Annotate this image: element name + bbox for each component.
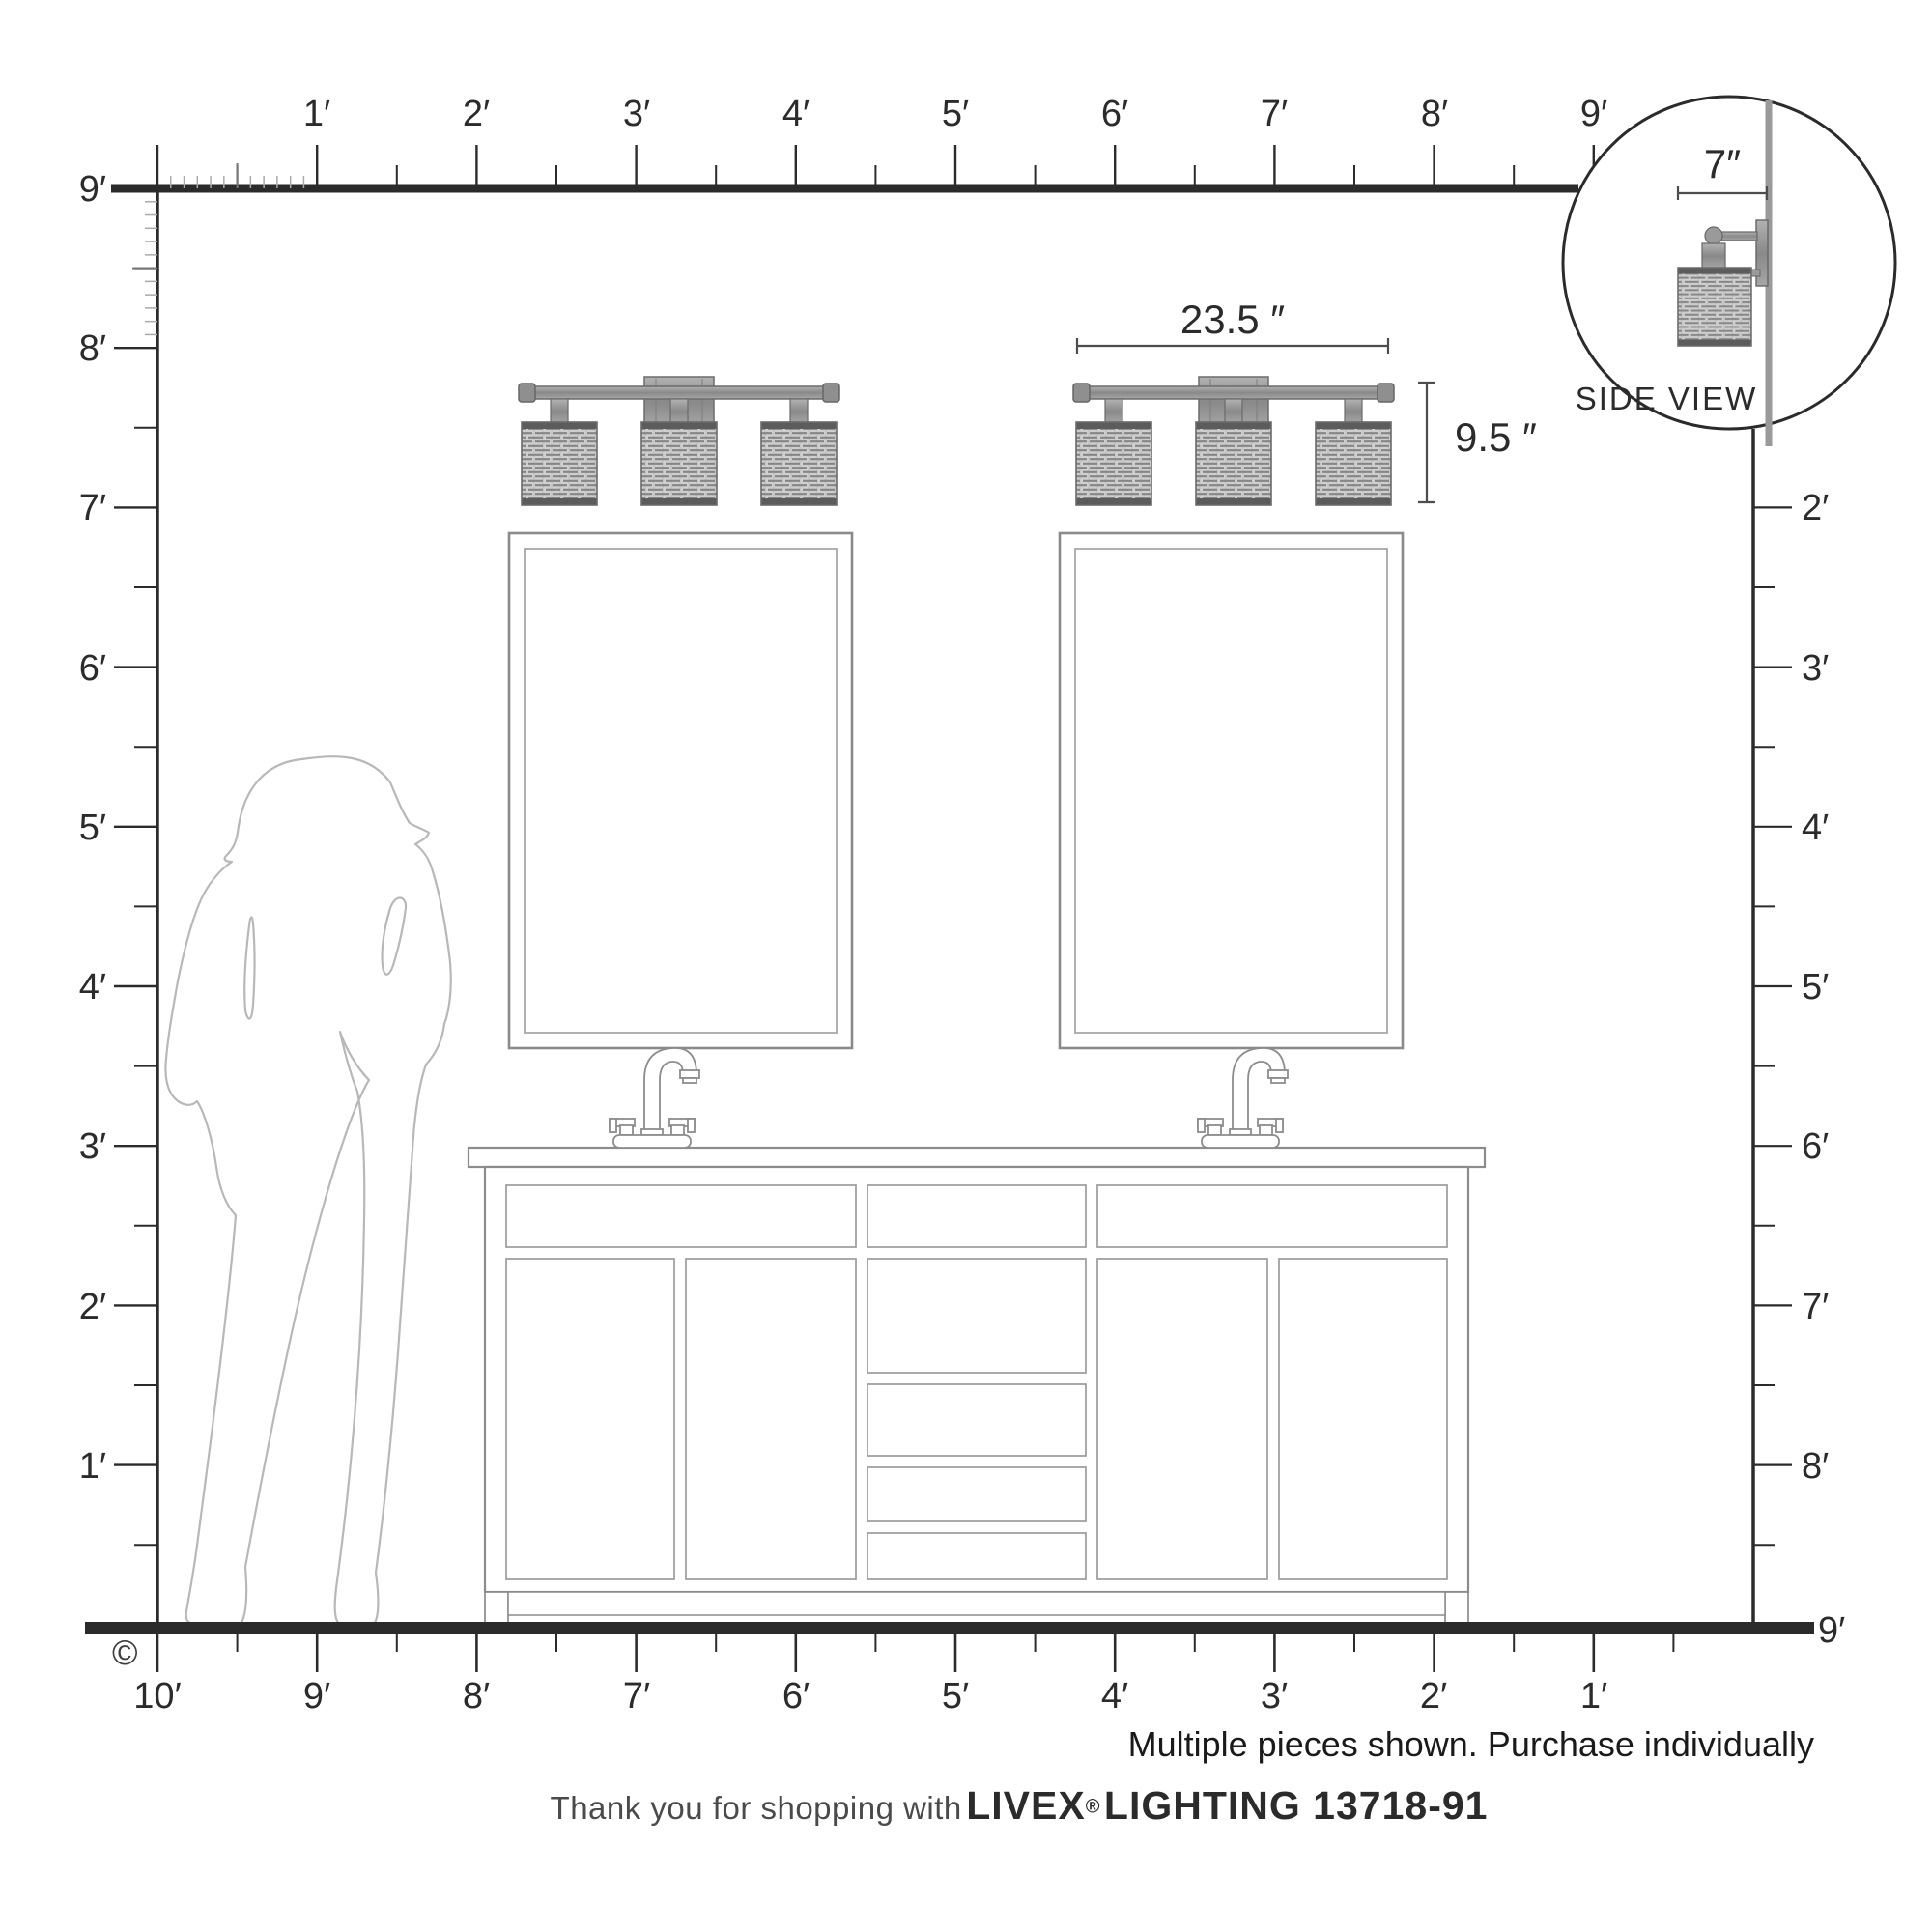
copyright-symbol: © xyxy=(112,1633,138,1673)
top-ruler xyxy=(157,145,1594,188)
left-ruler xyxy=(114,202,157,1545)
footer-product-number: LIGHTING 13718-91 xyxy=(1104,1783,1489,1828)
top-ruler-label-5ft: 5′ xyxy=(942,94,969,134)
right-ruler-label-5ft: 5′ xyxy=(1802,967,1829,1008)
right-ruler xyxy=(1753,507,1792,1545)
mirror-left xyxy=(509,533,852,1048)
countertop xyxy=(469,1148,1485,1167)
height-dimension-label: 9.5 ″ xyxy=(1455,414,1537,460)
left-ruler-label-6ft: 6′ xyxy=(79,648,106,689)
top-ruler-label-3ft: 3′ xyxy=(623,94,650,134)
vanity-light-right xyxy=(1073,377,1394,505)
top-ruler-label-7ft: 7′ xyxy=(1261,94,1288,134)
height-dimension xyxy=(1418,383,1435,502)
bottom-ruler-label-5ft: 5′ xyxy=(942,1676,969,1717)
right-ruler-label-4ft: 4′ xyxy=(1802,808,1829,848)
left-ruler-label-5ft: 5′ xyxy=(79,808,106,848)
side-view-label: SIDE VIEW xyxy=(1576,381,1758,416)
human-figure-silhouette xyxy=(165,756,450,1623)
scale-diagram-page: 23.5 ″ 9.5 ″ xyxy=(0,0,1932,1932)
left-ruler-label-7ft: 7′ xyxy=(79,488,106,528)
scale-diagram: 23.5 ″ 9.5 ″ xyxy=(0,0,1932,1932)
vanity-cabinet xyxy=(469,1148,1485,1627)
top-ruler-label-1ft: 1′ xyxy=(303,94,330,134)
bottom-ruler xyxy=(157,1628,1673,1672)
right-ruler-label-9ft: 9′ xyxy=(1818,1610,1845,1651)
purchase-note: Multiple pieces shown. Purchase individu… xyxy=(1128,1724,1814,1765)
faucet-left xyxy=(610,1048,699,1148)
footer: Thank you for shopping with LIVEX® LIGHT… xyxy=(0,1783,1932,1829)
left-ruler-label-4ft: 4′ xyxy=(79,967,106,1008)
vanity-light-left xyxy=(519,377,839,505)
left-ruler-label-3ft: 3′ xyxy=(79,1126,106,1167)
bottom-ruler-label-10ft: 10′ xyxy=(133,1676,181,1717)
left-ruler-label-1ft: 1′ xyxy=(79,1446,106,1487)
bottom-ruler-label-7ft: 7′ xyxy=(623,1676,650,1717)
bottom-ruler-label-6ft: 6′ xyxy=(782,1676,810,1717)
right-ruler-label-3ft: 3′ xyxy=(1802,648,1829,689)
left-ruler-label-9ft: 9′ xyxy=(79,169,106,210)
width-dimension-label: 23.5 ″ xyxy=(1180,297,1285,342)
bottom-ruler-label-1ft: 1′ xyxy=(1580,1676,1607,1717)
footer-brand-name: LIVEX xyxy=(966,1783,1085,1828)
faucet-right xyxy=(1198,1048,1288,1148)
mirror-right xyxy=(1060,533,1403,1048)
bottom-ruler-label-8ft: 8′ xyxy=(463,1676,490,1717)
left-ruler-label-2ft: 2′ xyxy=(79,1287,106,1327)
top-ruler-label-4ft: 4′ xyxy=(782,94,810,134)
bottom-ruler-label-9ft: 9′ xyxy=(303,1676,330,1717)
bottom-ruler-label-2ft: 2′ xyxy=(1420,1676,1447,1717)
registered-trademark-symbol: ® xyxy=(1086,1797,1100,1818)
right-ruler-label-7ft: 7′ xyxy=(1802,1287,1829,1327)
footer-thanks-text: Thank you for shopping with xyxy=(551,1790,962,1826)
top-ruler-label-2ft: 2′ xyxy=(463,94,490,134)
bottom-ruler-label-3ft: 3′ xyxy=(1261,1676,1288,1717)
bottom-ruler-label-4ft: 4′ xyxy=(1101,1676,1128,1717)
side-view-inset: 7″ SIDE VIEW xyxy=(1563,97,1895,446)
right-ruler-label-2ft: 2′ xyxy=(1802,488,1829,528)
depth-dimension-label: 7″ xyxy=(1704,141,1741,186)
top-ruler-label-8ft: 8′ xyxy=(1421,94,1448,134)
right-ruler-label-6ft: 6′ xyxy=(1802,1126,1829,1167)
left-ruler-label-8ft: 8′ xyxy=(79,328,106,369)
right-ruler-label-8ft: 8′ xyxy=(1802,1446,1829,1487)
top-ruler-label-9ft: 9′ xyxy=(1580,94,1607,134)
top-ruler-label-6ft: 6′ xyxy=(1101,94,1128,134)
